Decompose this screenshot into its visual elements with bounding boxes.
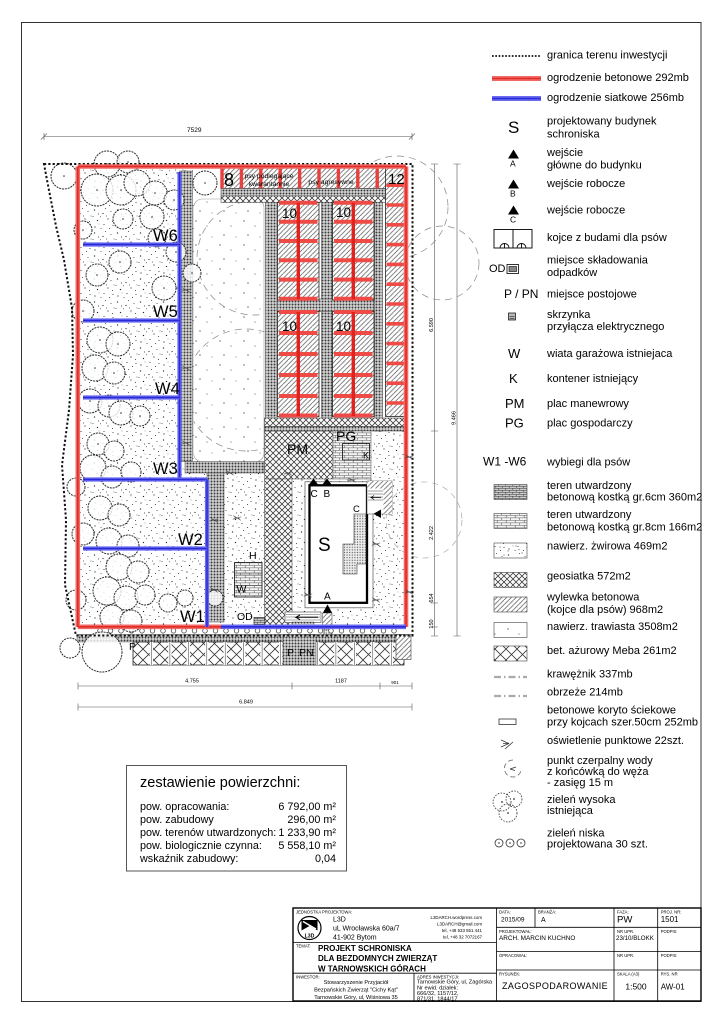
svg-text:C: C	[311, 489, 318, 500]
svg-text:12: 12	[388, 171, 405, 188]
svg-text:1187: 1187	[335, 679, 347, 685]
svg-text:psy podlegające: psy podlegające	[244, 173, 293, 180]
svg-text:6.849: 6.849	[239, 700, 253, 706]
svg-text:krawężnik 337mb: krawężnik 337mb	[547, 669, 633, 681]
svg-text:PG: PG	[505, 416, 524, 431]
svg-text:- zasięg 15 m: - zasięg 15 m	[547, 777, 613, 789]
svg-text:główne do budynku: główne do budynku	[547, 160, 642, 172]
svg-text:K: K	[363, 451, 369, 461]
svg-text:871/31, 1844/17: 871/31, 1844/17	[417, 996, 457, 1002]
svg-text:W3: W3	[153, 460, 178, 478]
svg-text:pow. zabudowy: pow. zabudowy	[140, 814, 214, 826]
svg-text:B: B	[510, 189, 516, 199]
svg-text:oświetlenie punktowe 22szt.: oświetlenie punktowe 22szt.	[547, 735, 684, 747]
svg-text:L3D: L3D	[333, 917, 346, 924]
svg-text:teren utwardzony: teren utwardzony	[547, 480, 632, 492]
svg-text:1 233,90 m²: 1 233,90 m²	[278, 827, 336, 839]
svg-text:miejsce postojowe: miejsce postojowe	[547, 289, 637, 301]
svg-text:OD: OD	[489, 263, 506, 275]
svg-text:NR UPR.: NR UPR.	[617, 953, 634, 958]
svg-text:miejsce składowania: miejsce składowania	[547, 255, 649, 267]
svg-text:RYSUNEK:: RYSUNEK:	[499, 972, 520, 977]
svg-text:geosiatka 572m2: geosiatka 572m2	[547, 571, 631, 583]
svg-text:PG: PG	[336, 428, 356, 444]
svg-text:W1: W1	[180, 608, 205, 626]
svg-text:wejście robocze: wejście robocze	[546, 205, 625, 217]
svg-text:PROJEKT SCHRONISKA: PROJEKT SCHRONISKA	[318, 944, 412, 953]
svg-text:OD: OD	[237, 611, 253, 623]
svg-text:S: S	[318, 535, 331, 556]
svg-text:plac gospodarczy: plac gospodarczy	[547, 418, 633, 430]
svg-text:DATA:: DATA:	[499, 910, 511, 915]
svg-text:RYS. NR: RYS. NR	[661, 972, 678, 977]
svg-text:wejście robocze: wejście robocze	[546, 178, 625, 190]
svg-text:W: W	[237, 584, 247, 596]
svg-text:654: 654	[429, 593, 435, 602]
svg-text:SKALA (A3): SKALA (A3)	[617, 972, 640, 977]
svg-text:P / PN: P / PN	[504, 287, 538, 301]
svg-text:wylewka betonowa: wylewka betonowa	[546, 592, 640, 604]
svg-text:PN: PN	[299, 647, 314, 659]
svg-text:OPRACOWAŁ:: OPRACOWAŁ:	[499, 953, 527, 958]
svg-text:granica terenu inwestycji: granica terenu inwestycji	[547, 50, 667, 62]
svg-text:pow. biologicznie czynna:: pow. biologicznie czynna:	[140, 840, 262, 852]
svg-text:S: S	[508, 118, 519, 137]
svg-text:plac manewrowy: plac manewrowy	[547, 398, 629, 410]
svg-text:wskaźnik zabudowy:: wskaźnik zabudowy:	[139, 853, 238, 865]
svg-text:W4: W4	[155, 380, 180, 398]
svg-text:NR UPR.: NR UPR.	[617, 929, 634, 934]
svg-text:6 792,00 m²: 6 792,00 m²	[278, 801, 336, 813]
svg-text:(kojce dla psów) 968m2: (kojce dla psów) 968m2	[547, 604, 663, 616]
svg-text:7529: 7529	[187, 127, 202, 134]
svg-text:Bezpańskich Zwierząt "Cichy Ką: Bezpańskich Zwierząt "Cichy Kąt"	[314, 988, 398, 994]
svg-text:10: 10	[282, 206, 297, 221]
svg-text:C: C	[510, 215, 516, 225]
svg-text:W1 -W6: W1 -W6	[483, 455, 527, 469]
svg-text:ogrodzenie siatkowe 256mb: ogrodzenie siatkowe 256mb	[547, 92, 684, 104]
svg-text:TEMAT:: TEMAT:	[296, 944, 311, 949]
svg-text:betonową kostką gr.8cm 166m2: betonową kostką gr.8cm 166m2	[547, 522, 702, 534]
svg-text:wejście: wejście	[546, 147, 583, 159]
svg-text:6.590: 6.590	[429, 318, 435, 332]
svg-text:betonową kostką gr.6cm 360m2: betonową kostką gr.6cm 360m2	[547, 492, 702, 504]
svg-text:nawierz. żwirowa 469m2: nawierz. żwirowa 469m2	[547, 541, 667, 553]
svg-text:PODPIS: PODPIS	[661, 929, 677, 934]
svg-text:projektowany budynek: projektowany budynek	[547, 116, 657, 128]
svg-text:1:500: 1:500	[625, 982, 647, 992]
svg-text:PM: PM	[287, 441, 308, 457]
svg-text:2.422: 2.422	[429, 526, 435, 540]
svg-text:0,04: 0,04	[315, 853, 336, 865]
svg-text:uL Wrocławska 60a/7: uL Wrocławska 60a/7	[333, 926, 400, 933]
svg-text:L3D: L3D	[305, 934, 315, 940]
svg-text:8: 8	[224, 170, 234, 190]
svg-text:ogrodzenie betonowe 292mb: ogrodzenie betonowe 292mb	[547, 72, 689, 84]
svg-text:C: C	[353, 504, 360, 515]
svg-text:4.755: 4.755	[185, 679, 199, 685]
svg-text:A: A	[510, 159, 516, 169]
svg-text:W TARNOWSKICH GÓRACH: W TARNOWSKICH GÓRACH	[318, 965, 426, 974]
svg-text:150: 150	[429, 619, 435, 628]
svg-text:PM: PM	[505, 396, 525, 411]
svg-text:5 558,10 m²: 5 558,10 m²	[278, 840, 336, 852]
svg-text:odpadków: odpadków	[547, 267, 597, 279]
svg-text:betonowe koryto ściekowe: betonowe koryto ściekowe	[547, 705, 676, 717]
svg-text:PROJEKTOWAŁ:: PROJEKTOWAŁ:	[499, 929, 532, 934]
svg-text:Stowarzyszenie Przyjaciół: Stowarzyszenie Przyjaciół	[324, 980, 389, 986]
svg-text:10: 10	[336, 319, 351, 334]
svg-text:L3DARCH@gmail.com: L3DARCH@gmail.com	[437, 922, 482, 927]
svg-text:PODPIS: PODPIS	[661, 953, 677, 958]
svg-text:bet. ażurowy Meba 261m2: bet. ażurowy Meba 261m2	[547, 645, 677, 657]
svg-text:10: 10	[282, 319, 297, 334]
svg-text:przyłącza elektrycznego: przyłącza elektrycznego	[547, 321, 664, 333]
svg-text:901: 901	[391, 680, 399, 685]
svg-text:23/10/BLOKK: 23/10/BLOKK	[616, 935, 655, 942]
svg-text:JEDNOSTKA PROJEKTOWA:: JEDNOSTKA PROJEKTOWA:	[296, 910, 352, 915]
svg-text:obrzeże 214mb: obrzeże 214mb	[547, 687, 623, 699]
svg-text:tel, +48 32 7072167: tel, +48 32 7072167	[443, 935, 482, 940]
svg-text:projektowana 30 szt.: projektowana 30 szt.	[547, 839, 648, 851]
svg-text:1501: 1501	[661, 915, 679, 924]
svg-text:AW-01: AW-01	[661, 983, 686, 992]
svg-text:przy kojcach szer.50cm 252mb: przy kojcach szer.50cm 252mb	[547, 717, 698, 729]
svg-text:kojce z budami dla psów: kojce z budami dla psów	[547, 232, 667, 244]
svg-text:DLA BEZDOMNYCH ZWIERZĄT: DLA BEZDOMNYCH ZWIERZĄT	[318, 954, 437, 963]
svg-text:W5: W5	[153, 303, 178, 321]
svg-text:PROJ. NR:: PROJ. NR:	[661, 910, 682, 915]
svg-text:9.466: 9.466	[452, 411, 458, 425]
svg-text:A: A	[324, 592, 331, 603]
svg-text:PW: PW	[617, 915, 632, 926]
svg-text:ZAGOSPODAROWANIE: ZAGOSPODAROWANIE	[502, 981, 608, 991]
svg-text:41-902 Bytom: 41-902 Bytom	[333, 935, 377, 942]
svg-text:P: P	[287, 647, 294, 659]
svg-text:BRANŻA:: BRANŻA:	[538, 910, 556, 915]
svg-text:pow. opracowania:: pow. opracowania:	[140, 801, 229, 813]
svg-text:kwarantannie: kwarantannie	[249, 181, 290, 188]
svg-text:2015/09: 2015/09	[501, 917, 525, 924]
svg-text:pow. terenów utwardzonych:: pow. terenów utwardzonych:	[140, 827, 276, 839]
svg-text:nawierz. trawiasta 3508m2: nawierz. trawiasta 3508m2	[547, 621, 678, 633]
svg-text:skrzynka: skrzynka	[547, 309, 591, 321]
svg-text:teren utwardzony: teren utwardzony	[547, 509, 632, 521]
svg-text:Tarnowskie Góry, ul, Wiśniowa: Tarnowskie Góry, ul, Wiśniowa 35	[314, 995, 398, 1001]
svg-text:tel, +48 533 551 441: tel, +48 533 551 441	[442, 928, 483, 933]
svg-text:schroniska: schroniska	[547, 129, 600, 141]
svg-text:H: H	[249, 550, 257, 562]
svg-text:10: 10	[336, 205, 351, 220]
svg-text:K: K	[509, 371, 518, 386]
svg-text:kontener istniejący: kontener istniejący	[547, 373, 639, 385]
svg-text:W6: W6	[153, 227, 178, 245]
svg-text:ARCH. MARCIN KUCHNO: ARCH. MARCIN KUCHNO	[499, 935, 575, 942]
svg-text:W: W	[508, 346, 521, 361]
svg-text:wiata garażowa istniejaca: wiata garażowa istniejaca	[546, 348, 673, 360]
svg-text:zestawienie powierzchni:: zestawienie powierzchni:	[140, 775, 300, 791]
svg-text:A: A	[541, 917, 546, 924]
svg-text:istniejąca: istniejąca	[547, 805, 594, 817]
svg-text:W2: W2	[178, 531, 203, 549]
svg-text:INWESTOR:: INWESTOR:	[296, 975, 320, 980]
svg-text:wybiegi dla psów: wybiegi dla psów	[546, 457, 630, 469]
svg-text:B: B	[324, 489, 331, 500]
svg-text:P: P	[129, 641, 136, 653]
svg-text:L3DARCH.wordpress.com: L3DARCH.wordpress.com	[431, 915, 483, 920]
svg-text:psy agresywne: psy agresywne	[308, 179, 354, 186]
svg-text:296,00 m²: 296,00 m²	[287, 814, 336, 826]
